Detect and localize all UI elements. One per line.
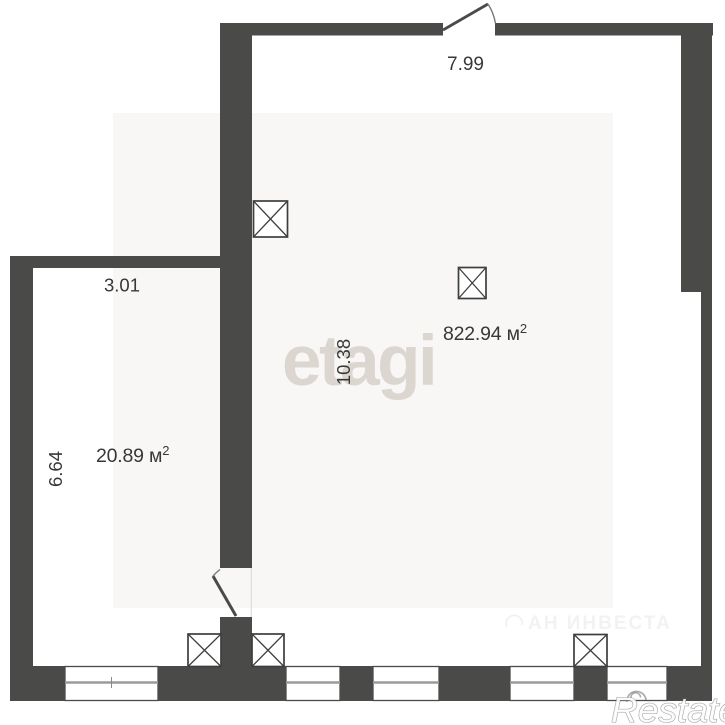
svg-text:3.01: 3.01	[104, 275, 140, 296]
svg-text:20.89 м2: 20.89 м2	[96, 443, 169, 467]
svg-text:822.94 м2: 822.94 м2	[443, 321, 527, 345]
svg-text:7.99: 7.99	[447, 54, 484, 75]
svg-text:etagi: etagi	[282, 322, 435, 401]
svg-text:Restate: Restate	[611, 691, 725, 725]
svg-text:АН ИНВЕСТА: АН ИНВЕСТА	[528, 613, 672, 634]
svg-text:10.38: 10.38	[333, 339, 354, 385]
svg-text:6.64: 6.64	[45, 451, 66, 487]
